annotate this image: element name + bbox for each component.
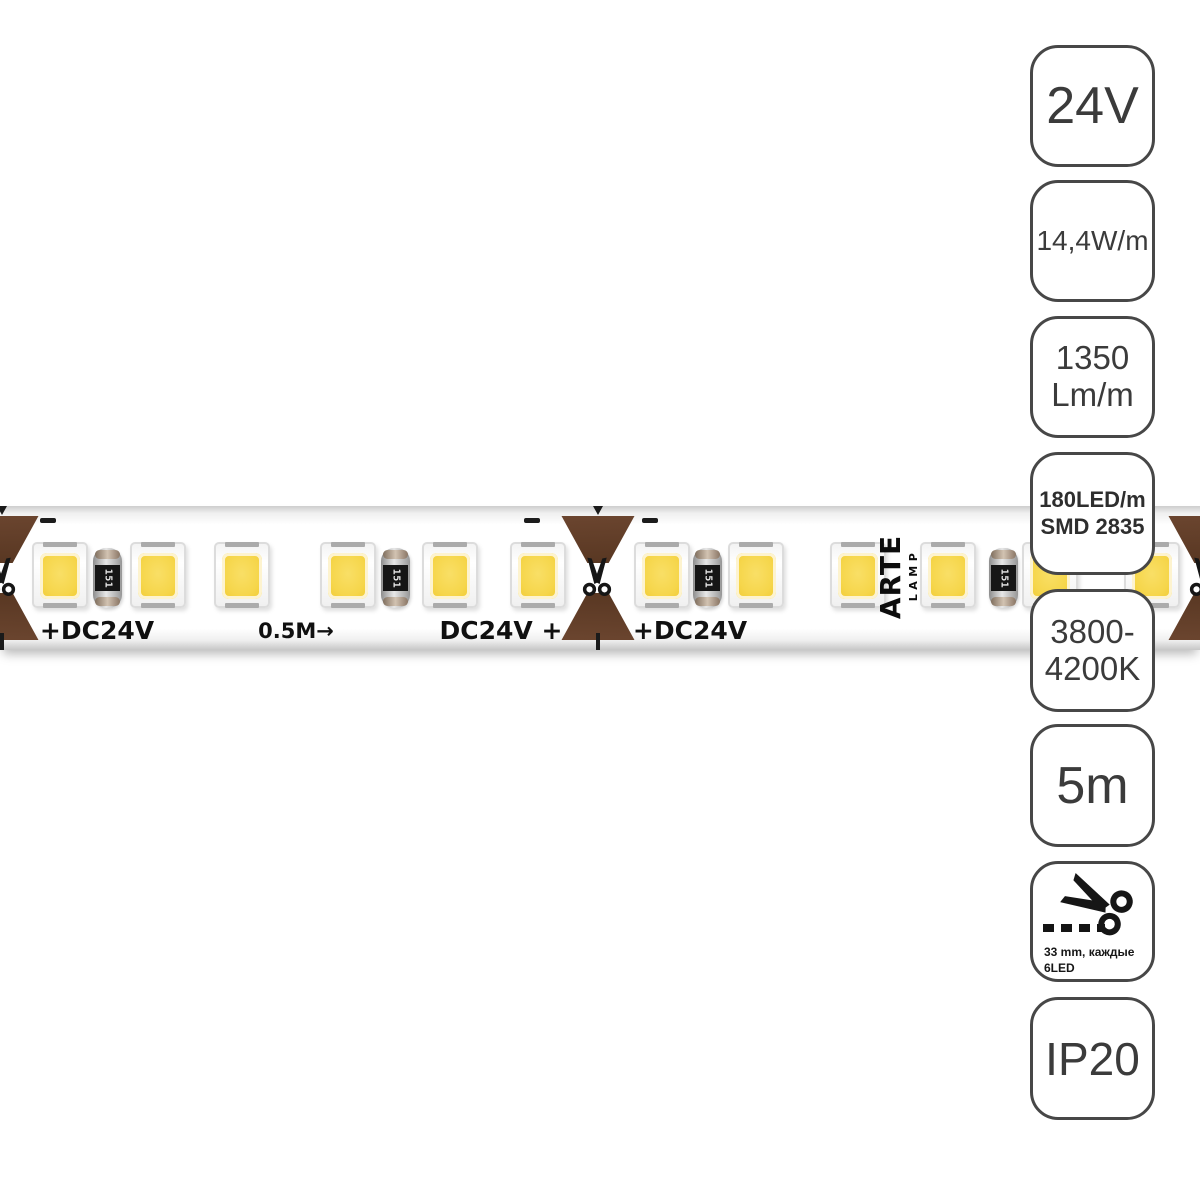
badge-ip-value: IP20 xyxy=(1045,1036,1140,1082)
polarity-minus-mark xyxy=(40,518,56,523)
led-die xyxy=(430,553,470,599)
led-die xyxy=(838,553,878,599)
resistor-band: 151 xyxy=(991,565,1016,591)
strip-label-half-meter: 0.5M→ xyxy=(236,619,356,643)
badge-voltage-value: 24V xyxy=(1046,80,1139,132)
polarity-minus-mark xyxy=(524,518,540,523)
copper-pad-bottom xyxy=(1167,593,1200,640)
badge-power: 14,4W/m xyxy=(1030,180,1155,302)
scissors-icon xyxy=(1189,557,1200,597)
resistor: 151 xyxy=(381,548,410,608)
resistor-band: 151 xyxy=(695,565,720,591)
cut-bar xyxy=(596,633,600,650)
resistor-label: 151 xyxy=(702,568,713,588)
led-die xyxy=(642,553,682,599)
badge-flux-value: 1350 xyxy=(1056,340,1129,377)
led-die xyxy=(222,553,262,599)
scissors-icon xyxy=(582,557,612,597)
brand-logo: ARTE LAMP xyxy=(877,529,921,625)
scissors-icon xyxy=(0,557,16,597)
badge-length: 5m xyxy=(1030,724,1155,847)
led-chip xyxy=(634,542,690,608)
led-die xyxy=(328,553,368,599)
cut-tick xyxy=(0,506,7,515)
badge-ip-rating: IP20 xyxy=(1030,997,1155,1120)
badge-color-temperature: 3800- 4200K xyxy=(1030,589,1155,712)
polarity-minus-mark xyxy=(642,518,658,523)
led-chip xyxy=(32,542,88,608)
resistor: 151 xyxy=(989,548,1018,608)
badge-led-density: 180LED/m SMD 2835 xyxy=(1030,452,1155,575)
resistor-band: 151 xyxy=(383,565,408,591)
badge-cct-line2: 4200K xyxy=(1045,651,1140,688)
led-chip xyxy=(214,542,270,608)
led-chip xyxy=(510,542,566,608)
badge-flux-unit: Lm/m xyxy=(1051,377,1134,414)
resistor: 151 xyxy=(693,548,722,608)
led-chip xyxy=(728,542,784,608)
cut-bar xyxy=(0,633,4,650)
badge-smd-type: SMD 2835 xyxy=(1041,514,1145,541)
copper-pad-top xyxy=(1167,516,1200,563)
badge-luminous-flux: 1350 Lm/m xyxy=(1030,316,1155,438)
strip-label-dc24v-right: +DC24V xyxy=(620,616,760,645)
badge-density-value: 180LED/m xyxy=(1039,487,1145,514)
led-die xyxy=(736,553,776,599)
brand-name: ARTE xyxy=(878,535,905,619)
resistor-band: 151 xyxy=(95,565,120,591)
strip-label-dc24v-left: +DC24V xyxy=(27,616,167,645)
led-strip: 151 151 151 151 xyxy=(0,506,1200,650)
copper-pad-top xyxy=(0,516,40,563)
led-die xyxy=(928,553,968,599)
led-chip xyxy=(422,542,478,608)
badge-length-value: 5m xyxy=(1056,760,1128,812)
badge-cct-line1: 3800- xyxy=(1050,614,1134,651)
cut-mark xyxy=(1167,506,1200,650)
product-image: 151 151 151 151 xyxy=(0,0,1200,1200)
brand-sub: LAMP xyxy=(907,549,920,606)
led-die xyxy=(138,553,178,599)
led-chip xyxy=(920,542,976,608)
cut-caption-line2: 6LED xyxy=(1044,960,1152,976)
badge-cut-interval: 33 mm, каждые 6LED xyxy=(1030,861,1155,982)
cut-tick xyxy=(593,506,603,515)
cut-caption-line1: 33 mm, каждые xyxy=(1044,944,1152,960)
resistor-label: 151 xyxy=(102,568,113,588)
badge-power-value: 14,4W/m xyxy=(1036,226,1148,257)
cut-interval-icon xyxy=(1033,870,1152,944)
resistor-label: 151 xyxy=(390,568,401,588)
strip-label-dc24v-mid: DC24V + xyxy=(431,616,571,645)
led-chip xyxy=(130,542,186,608)
badge-voltage: 24V xyxy=(1030,45,1155,167)
copper-pad-top xyxy=(560,516,636,563)
resistor-label: 151 xyxy=(998,568,1009,588)
led-die xyxy=(518,553,558,599)
led-chip xyxy=(320,542,376,608)
led-die xyxy=(40,553,80,599)
cut-interval-caption: 33 mm, каждые 6LED xyxy=(1033,944,1152,976)
resistor: 151 xyxy=(93,548,122,608)
